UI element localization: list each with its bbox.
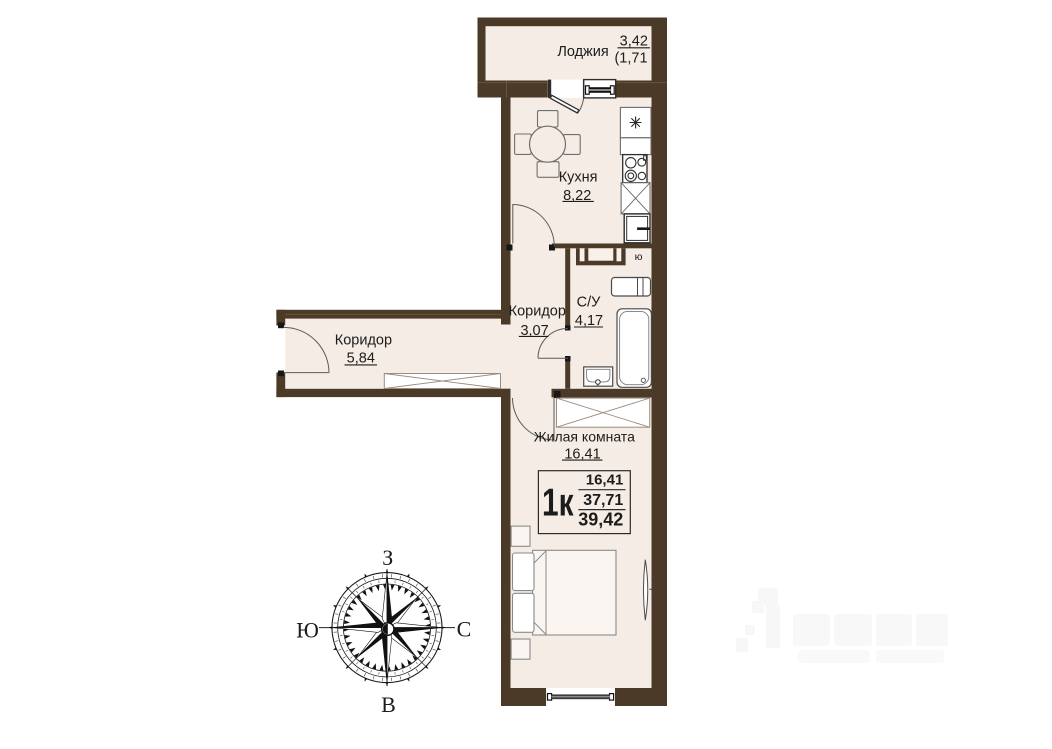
svg-text:З: З (382, 545, 393, 570)
svg-text:Лоджия: Лоджия (557, 44, 608, 60)
svg-text:16,41: 16,41 (586, 471, 624, 488)
svg-text:С: С (457, 617, 472, 642)
svg-text:Коридор: Коридор (509, 304, 566, 320)
svg-text:ю: ю (635, 251, 643, 263)
svg-text:37,71: 37,71 (583, 492, 623, 509)
svg-text:В: В (381, 692, 396, 717)
svg-text:Коридор: Коридор (335, 332, 392, 348)
svg-text:Жилая комната: Жилая комната (534, 428, 635, 444)
svg-text:1к: 1к (542, 482, 574, 525)
svg-text:39,42: 39,42 (578, 510, 623, 530)
svg-text:3,42: 3,42 (620, 34, 648, 50)
svg-text:(1,71: (1,71 (614, 51, 647, 67)
svg-text:С/У: С/У (577, 295, 602, 311)
svg-text:Ю: Ю (296, 618, 319, 643)
svg-text:5,84: 5,84 (347, 351, 375, 367)
svg-text:Кухня: Кухня (559, 169, 598, 185)
